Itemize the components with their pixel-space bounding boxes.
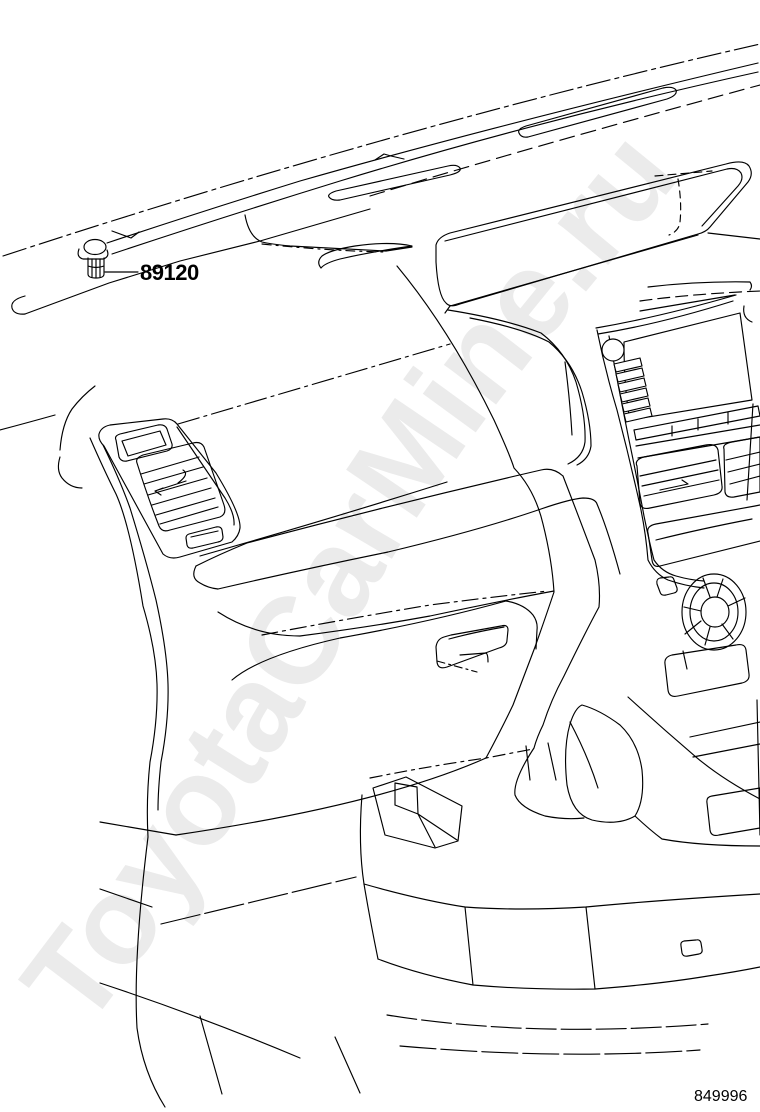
svg-text:849996: 849996: [694, 1088, 747, 1105]
svg-text:89120: 89120: [140, 260, 199, 285]
